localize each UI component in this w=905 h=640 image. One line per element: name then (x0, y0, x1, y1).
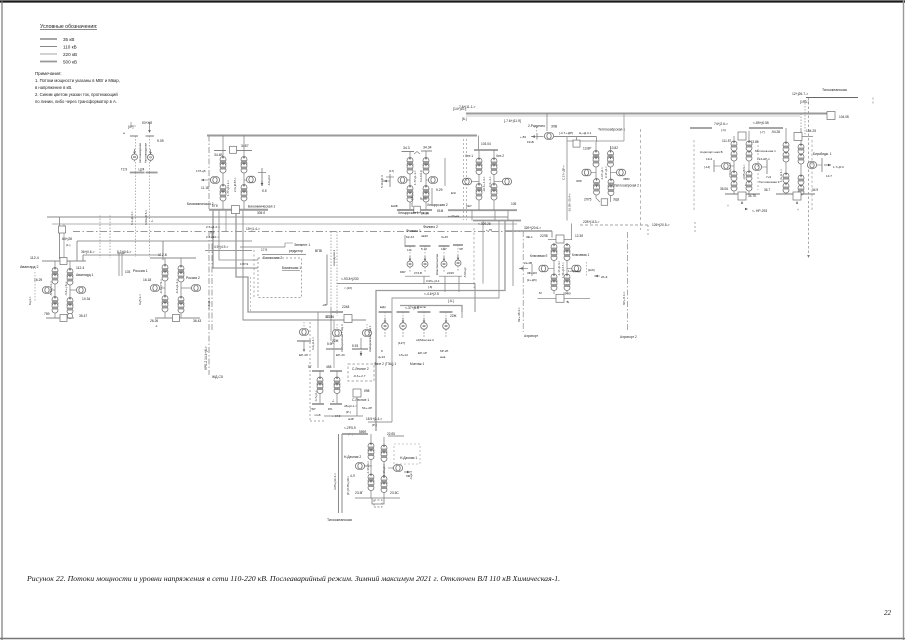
svg-text:[-14]: [-14] (704, 165, 710, 169)
svg-text:1.77+j11.1->: 1.77+j11.1-> (226, 180, 230, 196)
svg-text:Хабаровская ТЭЦ 1: Хабаровская ТЭЦ 1 (368, 325, 372, 352)
svg-text:34б7: 34б7 (241, 144, 249, 148)
svg-text:ЗЛ9: ЗЛ9 (576, 179, 582, 183)
svg-text:-1: -1 (155, 324, 158, 328)
svg-text:[-7.6+j11.9]: [-7.6+j11.9] (504, 119, 521, 123)
svg-text:Биробидж. 1: Биробидж. 1 (813, 152, 832, 156)
svg-text:Условные обозначения:: Условные обозначения: (40, 24, 98, 30)
svg-text:Н.Дачная 2: Н.Дачная 2 (344, 455, 361, 459)
svg-text:б98: б98 (364, 389, 370, 393)
svg-text:[127]: [127] (398, 341, 405, 345)
svg-text:[-6-]: [-6-] (448, 299, 454, 303)
svg-text:34.3б: 34.3б (421, 212, 429, 216)
svg-text:<-4.6+j2.5: <-4.6+j2.5 (424, 292, 439, 296)
svg-text:23.5С: 23.5С (390, 491, 399, 495)
svg-text:8+j4->: 8+j4-> (28, 296, 32, 305)
svg-text:по линии, либо через трансформ: по линии, либо через трансформатор в А. (35, 99, 117, 104)
svg-text:-6.3+j1.4->: -6.3+j1.4-> (175, 279, 179, 294)
svg-text:ЖД-С5: ЖД-С5 (212, 375, 223, 379)
svg-text:2Л75: 2Л75 (584, 198, 592, 202)
svg-text:Авангард 2: Авангард 2 (20, 265, 39, 269)
svg-text:[-4]: [-4] (721, 128, 726, 132)
svg-text:22.б5: 22.б5 (387, 432, 395, 436)
svg-text:15+j1.4->: 15+j1.4-> (246, 227, 260, 231)
svg-text:4б8: 4б8 (326, 365, 332, 369)
svg-text:а: а (123, 131, 125, 135)
svg-text:2.7+j10->: 2.7+j10-> (206, 235, 219, 239)
svg-text:5.10+-j0.4: 5.10+-j0.4 (380, 175, 384, 188)
svg-text:112.4: 112.4 (76, 266, 84, 270)
svg-text:Бикинская 1: Бикинская 1 (282, 266, 301, 270)
svg-text:2а.4В: 2а.4В (524, 261, 532, 265)
svg-text:6.09+j0.5->: 6.09+j0.5-> (144, 210, 148, 225)
svg-text:-9.3+-2.7: -9.3+-2.7 (353, 374, 366, 378)
svg-text:+: + (727, 204, 729, 208)
svg-text:759: 759 (44, 312, 50, 316)
svg-text:[-4.7+-ДР]: [-4.7+-ДР] (559, 131, 573, 135)
svg-text:12.3б: 12.3б (575, 234, 583, 238)
svg-text:ЕШБ: ЕШБ (391, 204, 398, 208)
svg-text:Элемент 1: Элемент 1 (294, 243, 310, 247)
svg-text:2248: 2248 (342, 305, 350, 309)
svg-text:4в4б: 4в4б (421, 234, 428, 238)
svg-text:1+9(соед): 1+9(соед) (568, 269, 581, 273)
svg-text:<-029.26: <-029.26 (478, 222, 491, 226)
svg-text:-28: -28 (322, 303, 327, 307)
svg-text:84Р: 84Р (400, 270, 406, 274)
svg-text:9.09: 9.09 (157, 139, 164, 143)
svg-text:ЗЛВ: ЗЛВ (551, 125, 557, 129)
svg-text:Биохимическая 1: Биохимическая 1 (248, 205, 275, 209)
svg-text:6.2+j1.4->: 6.2+j1.4-> (311, 337, 315, 350)
svg-text:ЕД1: ЕД1 (380, 305, 386, 309)
svg-text:Автозаводская: Автозаводская (138, 143, 142, 163)
svg-text:36.43: 36.43 (193, 319, 201, 323)
svg-text:5.93: 5.93 (352, 344, 358, 348)
svg-text:Автозаводская: Автозаводская (144, 143, 148, 163)
svg-text:ЗФ+Жб: ЗФ+Жб (527, 271, 537, 275)
svg-text:Филино 2: Филино 2 (423, 225, 438, 229)
svg-text:ЗЦ8: ЗЦ8 (613, 198, 619, 202)
svg-text:б1М: б1М (437, 209, 444, 213)
svg-text:Н.Дачная 1: Н.Дачная 1 (400, 456, 417, 460)
svg-text:Аэропорт: Аэропорт (524, 334, 539, 338)
svg-text:Тихоокеанская: Тихоокеанская (822, 88, 847, 92)
svg-text:-32.6+-1.4->: -32.6+-1.4-> (482, 176, 486, 192)
svg-text:22Ж: 22Ж (332, 339, 339, 343)
svg-text:-6.9+j0.6: -6.9+j0.6 (267, 175, 271, 186)
svg-text:2. Синим цветом указан ток, пр: 2. Синим цветом указан ток, протекающий (35, 92, 118, 97)
svg-text:6Р+-8.4->: 6Р+-8.4-> (622, 291, 626, 305)
svg-text:22Ж: 22Ж (450, 314, 457, 318)
svg-text:36+j0.6->: 36+j0.6-> (81, 250, 95, 254)
svg-text:+.83: +.83 (520, 135, 526, 139)
svg-text:9.29: 9.29 (436, 188, 443, 192)
svg-text:35.47: 35.47 (79, 314, 87, 318)
svg-text:б.б: б.б (262, 189, 267, 193)
svg-text:2.5+j1.2->: 2.5+j1.2-> (206, 225, 220, 229)
svg-text:18.5+j1.4->: 18.5+j1.4-> (366, 417, 382, 421)
svg-text:54+-2Р: 54+-2Р (362, 406, 372, 410)
svg-text:124-НР-1: 124-НР-1 (757, 157, 770, 161)
svg-text:2б+9: 2б+9 (601, 275, 608, 279)
svg-text:б3+Жб: б3+Жб (142, 121, 152, 125)
svg-text:35.06: 35.06 (720, 187, 728, 191)
svg-text:Монтаж 1: Монтаж 1 (410, 362, 424, 366)
svg-text:104.0Б: 104.0Б (839, 115, 849, 119)
svg-text:17б+j8: 17б+j8 (196, 169, 206, 173)
svg-text:104.25: 104.25 (806, 129, 816, 133)
svg-text:ХРБ-2 14.4+j6->: ХРБ-2 14.4+j6-> (204, 346, 208, 370)
svg-text:Тепловозная 9: Тепловозная 9 (759, 180, 780, 184)
svg-text:9.09: 9.09 (420, 197, 427, 201)
svg-text:111.57: 111.57 (722, 139, 732, 143)
svg-text:+-75: +-75 (486, 228, 492, 232)
svg-text:[-6]: [-6] (428, 285, 432, 289)
svg-text:34.4Б: 34.4Б (214, 153, 223, 157)
svg-text:жив: жив (440, 355, 446, 359)
svg-text:ф-23: ф-23 (378, 355, 385, 359)
svg-text:Россия 1: Россия 1 (133, 269, 148, 273)
svg-text:26.26: 26.26 (150, 319, 158, 323)
svg-text:С.Лесное 1: С.Лесное 1 (352, 398, 369, 402)
svg-text:1Ж: 1Ж (407, 248, 412, 252)
svg-text:6Р-2б: 6Р-2б (440, 349, 449, 353)
svg-text:Россия 2: Россия 2 (186, 276, 200, 280)
svg-text:-6.4+j9->: -6.4+j9-> (207, 298, 211, 310)
svg-text:С.37+-ДР->: С.37+-ДР-> (562, 165, 566, 180)
svg-text:3.05+j14.4->: 3.05+j14.4-> (333, 473, 337, 490)
svg-text:6+j5.3->: 6+j5.3-> (138, 294, 142, 305)
svg-text:-1.36+j4->: -1.36+j4-> (366, 461, 370, 474)
svg-text:[17]: [17] (389, 169, 394, 173)
svg-text:[-7]: [-7] (760, 130, 765, 134)
svg-text:103.04: 103.04 (481, 142, 491, 146)
svg-text:ЗЕ-1: ЗЕ-1 (526, 235, 533, 239)
svg-text:Тихоокеанская: Тихоокеанская (327, 518, 352, 522)
svg-text:4.9+j4.9->: 4.9+j4.9-> (214, 245, 228, 249)
svg-text:32б+j20.6->: 32б+j20.6-> (524, 226, 541, 230)
svg-text:+-объем: +-объем (448, 214, 459, 218)
svg-text:220 кВ: 220 кВ (63, 52, 77, 57)
svg-text:Аэропорт-ная Б: Аэропорт-ная Б (700, 150, 723, 154)
svg-text:1б+14: 1б+14 (399, 353, 408, 357)
svg-text:<-89+j0.55: <-89+j0.55 (753, 121, 769, 125)
svg-text:-6.7+j4->: -6.7+j4-> (314, 390, 318, 402)
svg-text:Аэропорт 2: Аэропорт 2 (620, 335, 637, 339)
svg-text:+-Считж: +-Считж (414, 305, 427, 309)
svg-text:[Р-] 8.05+j10->: [Р-] 8.05+j10-> (346, 476, 350, 495)
svg-text:34.7Б: 34.7Б (748, 194, 756, 198)
svg-text:11.1Б: 11.1Б (201, 186, 209, 190)
svg-text:23.5Г: 23.5Г (355, 491, 363, 495)
svg-text:ВПВ: ВПВ (315, 249, 323, 253)
svg-text:34.34: 34.34 (423, 146, 432, 150)
svg-text:Ключевая б: Ключевая б (530, 254, 548, 258)
svg-text:[193-]: [193-] (800, 100, 809, 104)
svg-text:17.9: 17.9 (261, 248, 267, 252)
svg-text:305.б: 305.б (257, 211, 265, 215)
svg-text:1.7+j0.6: 1.7+j0.6 (833, 165, 844, 169)
svg-text:М: М (539, 291, 542, 295)
svg-text:62-43: 62-43 (406, 235, 414, 239)
svg-text:ЕГб: ЕГб (212, 204, 218, 208)
svg-text:Ключевая 1: Ключевая 1 (572, 253, 590, 257)
svg-text:34.9: 34.9 (812, 188, 818, 192)
svg-text:16.18: 16.18 (143, 278, 151, 282)
svg-text:что8: что8 (314, 413, 321, 417)
svg-text:Комсомольская: Комсомольская (435, 254, 439, 275)
svg-text:с2|Монтаж 2: с2|Монтаж 2 (416, 338, 434, 342)
svg-text:34.3: 34.3 (403, 146, 410, 150)
svg-text:ЕР-1Р: ЕР-1Р (418, 351, 427, 355)
svg-text:Рисунок 22. Потоки мощности и: Рисунок 22. Потоки мощности и уровни нап… (26, 574, 560, 583)
svg-text:Авангард 1: Авангард 1 (76, 273, 94, 277)
svg-text:-3.05+j8.9->: -3.05+j8.9-> (742, 164, 746, 180)
svg-text:112.8: 112.8 (158, 253, 167, 257)
svg-text:ж4Р: ж4Р (348, 417, 354, 421)
svg-text:8Л-: 8Л- (328, 407, 333, 411)
svg-text:1.77+j1.1->: 1.77+j1.1-> (413, 170, 417, 185)
svg-text:<-[1б]: <-[1б] (344, 286, 352, 290)
svg-text:Биохимическая 2: Биохимическая 2 (187, 202, 214, 206)
svg-text:<-2Р.5-9: <-2Р.5-9 (344, 426, 356, 430)
svg-text:4.Л: 4.Л (350, 474, 355, 478)
svg-text:1-: 1- (150, 219, 154, 222)
svg-text:Фаэт 2 (ТЭЦ) 1: Фаэт 2 (ТЭЦ) 1 (374, 362, 396, 366)
svg-text:б1Р: б1Р (466, 204, 472, 208)
svg-text:1-: 1- (331, 399, 335, 402)
svg-text:Аэродром-1: Аэродром-1 (332, 250, 336, 266)
svg-text:[2+-Дб]: [2+-Дб] (527, 278, 537, 282)
svg-text:17Р-9: 17Р-9 (240, 262, 249, 266)
svg-text:36.7: 36.7 (764, 188, 770, 192)
svg-text:500 кВ: 500 кВ (63, 60, 77, 65)
svg-text:3+4б: 3+4б (441, 235, 448, 239)
svg-text:110 кВ: 110 кВ (63, 45, 77, 50)
svg-text:7+9: 7+9 (766, 175, 771, 179)
svg-text:[1-]: [1-] (66, 243, 71, 247)
svg-text:3.6+-3.6->: 3.6+-3.6-> (410, 194, 414, 207)
svg-text:19-2: 19-2 (706, 157, 712, 161)
svg-text:228+j113->: 228+j113-> (583, 220, 600, 224)
svg-text:0.06+-j3.4: 0.06+-j3.4 (426, 279, 440, 283)
svg-text:-5.06+j4: -5.06+j4 (463, 267, 467, 278)
svg-text:69+-38.4->: 69+-38.4-> (517, 307, 521, 322)
svg-text:14.7: 14.7 (826, 174, 832, 178)
svg-text:Теплоозёрская 1: Теплоозёрская 1 (598, 128, 625, 132)
svg-text:Хех 2: Хех 2 (496, 154, 504, 158)
svg-text:[Р-]: [Р-] (372, 423, 377, 427)
svg-text:12+j26.7->: 12+j26.7-> (792, 92, 808, 96)
svg-text:<- НР-293: <- НР-293 (752, 209, 767, 213)
svg-text:ЕР-43: ЕР-43 (336, 353, 345, 357)
svg-text:22ЛБ: 22ЛБ (540, 234, 548, 238)
svg-text:ЧР: ЧР (459, 247, 463, 251)
svg-text:105: 105 (511, 202, 517, 206)
svg-text:13.8Р: 13.8Р (583, 147, 591, 151)
svg-text:6.1+j0.4->: 6.1+j0.4-> (130, 211, 134, 225)
svg-text:13.82: 13.82 (610, 146, 618, 150)
svg-text:<-93.8+j230: <-93.8+j230 (341, 277, 359, 281)
svg-text:бФ: бФ (406, 474, 411, 478)
svg-text:1.6+j1.4->: 1.6+j1.4-> (779, 169, 783, 182)
svg-text:74+j2.6->: 74+j2.6-> (714, 122, 728, 126)
svg-text:редуктор: редуктор (289, 249, 303, 253)
svg-text:[Р-]: [Р-] (346, 410, 351, 414)
svg-text:Хехцирская 2: Хехцирская 2 (427, 203, 448, 207)
svg-text:274.Б: 274.Б (414, 271, 422, 275)
svg-text:48+j4.1->: 48+j4.1-> (344, 404, 357, 408)
svg-text:5.1б: 5.1б (421, 247, 427, 251)
svg-text:Филино 1: Филино 1 (406, 229, 421, 233)
svg-text:559б: 559б (359, 430, 366, 434)
svg-text:Примечания:: Примечания: (35, 71, 62, 76)
svg-text:[6-]: [6-] (462, 117, 467, 121)
svg-text:35 кВ: 35 кВ (63, 37, 74, 42)
svg-text:0.17+j1->: 0.17+j1-> (604, 166, 608, 178)
svg-text:Ц24: Ц24 (139, 168, 145, 172)
svg-text:112.4: 112.4 (30, 256, 39, 260)
svg-text:Хехцирская 1: Хехцирская 1 (398, 211, 419, 215)
svg-text:224б: 224б (447, 271, 454, 275)
svg-text:64+j28: 64+j28 (62, 237, 72, 241)
svg-text:-16.39+-20.4->: -16.39+-20.4-> (568, 193, 572, 212)
svg-text:ЕЖ: ЕЖ (451, 191, 456, 195)
svg-text:ЗВМ: ЗВМ (623, 177, 630, 181)
svg-text:22: 22 (884, 609, 892, 617)
svg-text:ЕР-4Л: ЕР-4Л (299, 353, 308, 357)
svg-text:Теплоозёрская 2: Теплоозёрская 2 (614, 184, 639, 188)
svg-text:Г2.9: Г2.9 (121, 168, 127, 172)
svg-text:2.6+j0.87->: 2.6+j0.87-> (233, 177, 237, 192)
svg-text:126+j20.5->: 126+j20.5-> (652, 223, 670, 227)
svg-text:74Р: 74Р (310, 407, 316, 411)
svg-text:1.3б+j2->: 1.3б+j2-> (382, 463, 386, 476)
svg-text:-94.28: -94.28 (771, 130, 780, 134)
svg-text:7.6+j11.1->: 7.6+j11.1-> (459, 105, 476, 109)
svg-text:19чБ: 19чБ (527, 140, 534, 144)
svg-text:Ц.+Д.4-1: Ц.+Д.4-1 (579, 131, 592, 135)
svg-text:10.34: 10.34 (82, 297, 90, 301)
svg-text:+: + (797, 208, 799, 212)
svg-text:-3.6+-j.6->: -3.6+-j.6-> (64, 282, 68, 296)
svg-text:Хабаровская ТЭЦ 3: Хабаровская ТЭЦ 3 (340, 324, 344, 352)
svg-text:[2и9]: [2и9] (588, 268, 595, 272)
svg-text:в напряжение в кВ.: в напряжение в кВ. (35, 85, 72, 90)
svg-text:1. Потоки мощности указаны в М: 1. Потоки мощности указаны в МВт и Мвар, (35, 78, 120, 83)
svg-text:103: 103 (125, 270, 131, 274)
svg-text:9: 9 (381, 349, 383, 353)
svg-text:6.2-9.0-9: 6.2-9.0-9 (419, 170, 423, 182)
svg-text:С.Лесное 2: С.Лесное 2 (352, 367, 369, 371)
svg-text:[Т-]: [Т-] (210, 230, 215, 234)
